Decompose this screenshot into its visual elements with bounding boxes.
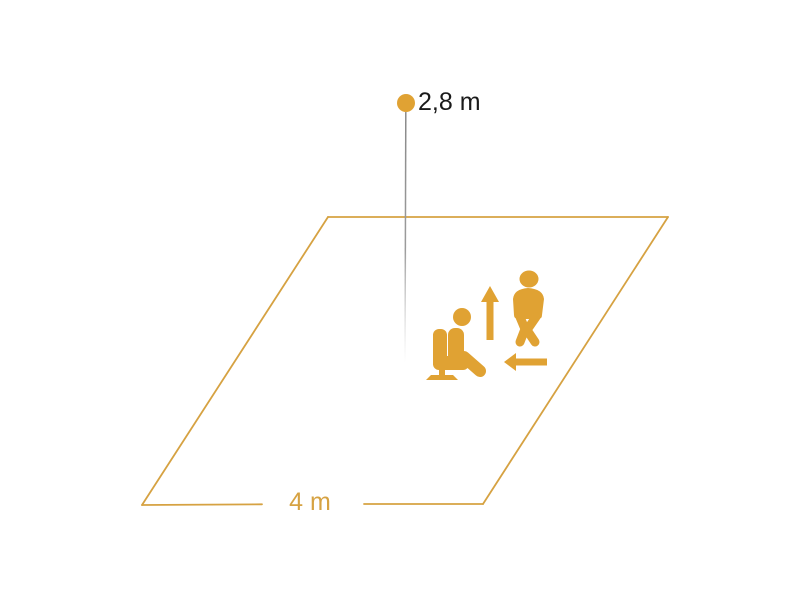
area-side-length-label: 4 m bbox=[287, 490, 333, 515]
sensor-dot-icon bbox=[397, 94, 415, 112]
walking-person-leg-right bbox=[527, 317, 536, 342]
detection-range-diagram bbox=[0, 0, 799, 599]
up-arrow-head bbox=[481, 286, 499, 302]
seated-person-head bbox=[453, 308, 471, 326]
mounting-height-line bbox=[405, 112, 406, 363]
area-edge-bottom-left bbox=[142, 504, 262, 505]
area-edge-left bbox=[142, 217, 328, 505]
up-arrow-icon bbox=[481, 286, 499, 340]
left-arrow-shaft bbox=[515, 359, 547, 366]
up-arrow-shaft bbox=[487, 301, 494, 340]
mounting-height-label: 2,8 m bbox=[418, 90, 481, 115]
left-arrow-head bbox=[504, 353, 516, 371]
left-arrow-icon bbox=[504, 353, 547, 371]
chair-base bbox=[426, 375, 458, 380]
walking-person-head bbox=[520, 271, 539, 288]
walking-person-icon bbox=[513, 271, 544, 343]
diagram-canvas: 2,8 m 4 m bbox=[0, 0, 799, 599]
seated-person-icon bbox=[426, 308, 480, 380]
